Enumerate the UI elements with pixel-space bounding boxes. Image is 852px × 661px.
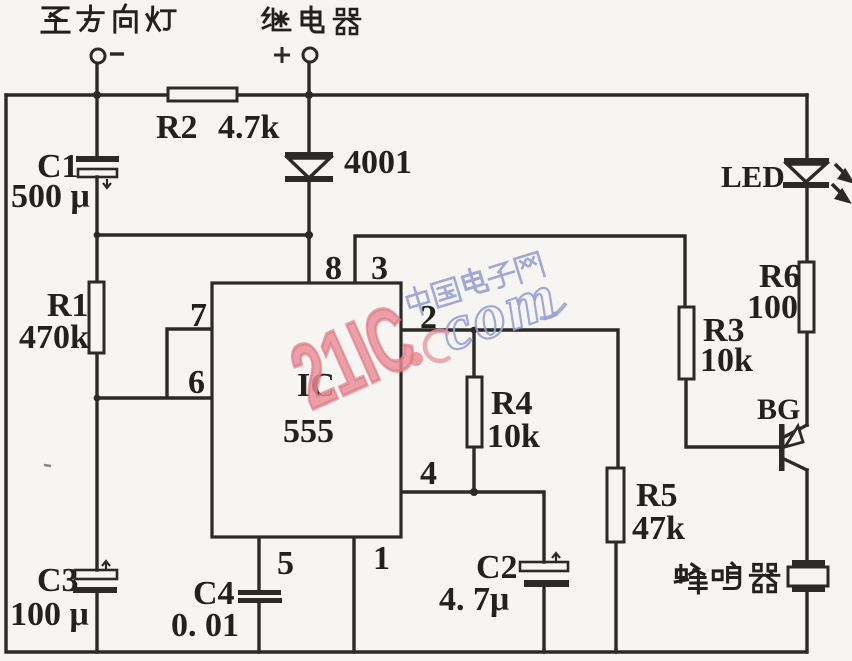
svg-text:R4: R4	[491, 385, 533, 422]
svg-text:10k: 10k	[487, 418, 540, 455]
svg-text:7: 7	[190, 297, 207, 334]
svg-text:100 μ: 100 μ	[10, 596, 89, 633]
svg-text:100: 100	[747, 289, 798, 326]
svg-text:3: 3	[371, 250, 388, 287]
svg-text:470k: 470k	[19, 319, 89, 356]
svg-text:4.7k: 4.7k	[218, 109, 280, 146]
svg-text:4: 4	[420, 455, 437, 492]
svg-text:8: 8	[325, 250, 342, 287]
svg-text:4. 7μ: 4. 7μ	[439, 581, 509, 618]
svg-text:4001: 4001	[344, 144, 412, 181]
svg-text:BG: BG	[757, 393, 800, 426]
svg-text:R2: R2	[156, 109, 198, 146]
svg-text:1: 1	[373, 540, 390, 577]
svg-text:6: 6	[188, 364, 205, 401]
svg-text:500 μ: 500 μ	[11, 178, 90, 215]
svg-text:47k: 47k	[632, 510, 685, 547]
svg-text:5: 5	[277, 545, 294, 582]
svg-text:LED: LED	[721, 159, 785, 194]
svg-text:R5: R5	[636, 477, 678, 514]
svg-text:C3: C3	[37, 562, 79, 599]
svg-text:0. 01: 0. 01	[171, 607, 239, 644]
svg-text:10k: 10k	[700, 342, 753, 379]
